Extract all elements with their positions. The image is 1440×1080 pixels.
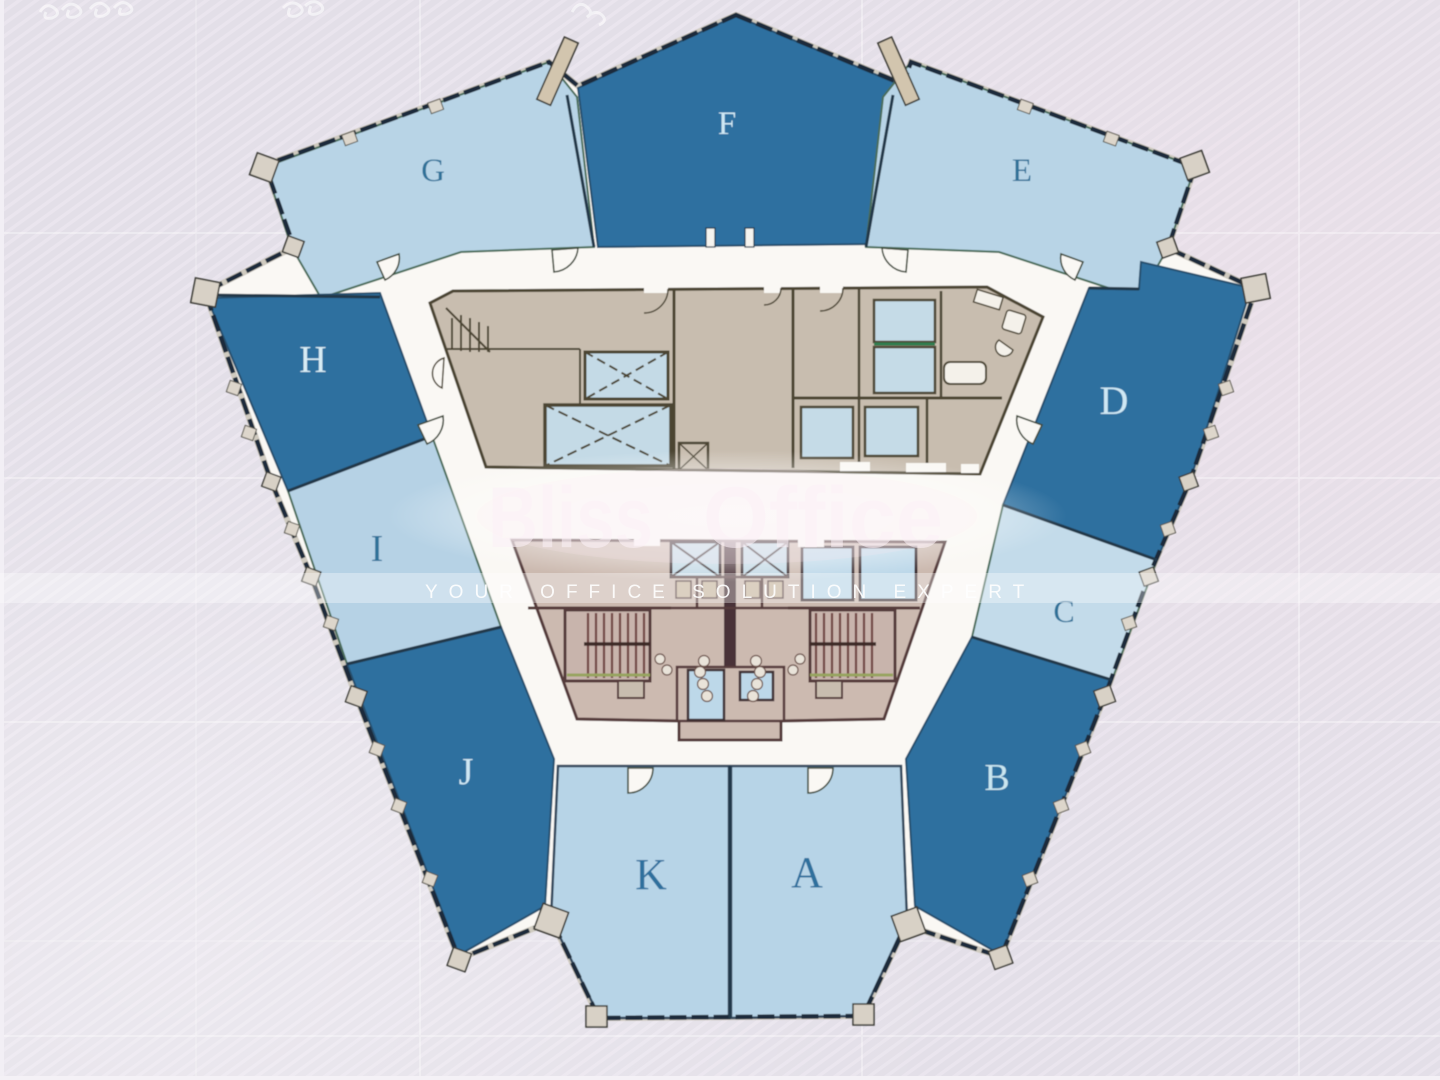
svg-text:J: J [459,751,474,793]
svg-text:Bliss: Bliss [488,470,653,566]
svg-text:H: H [299,339,326,381]
svg-text:D: D [1100,378,1129,423]
svg-text:I: I [371,528,384,570]
svg-text:B: B [984,757,1009,799]
svg-text:K: K [635,850,667,899]
svg-text:Office: Office [703,470,943,566]
svg-text:G: G [421,153,445,189]
svg-text:YOUR OFFICE SOLUTION EXPERT: YOUR OFFICE SOLUTION EXPERT [425,582,1035,603]
svg-text:E: E [1012,153,1032,189]
svg-text:F: F [718,106,736,142]
svg-text:A: A [791,848,823,897]
